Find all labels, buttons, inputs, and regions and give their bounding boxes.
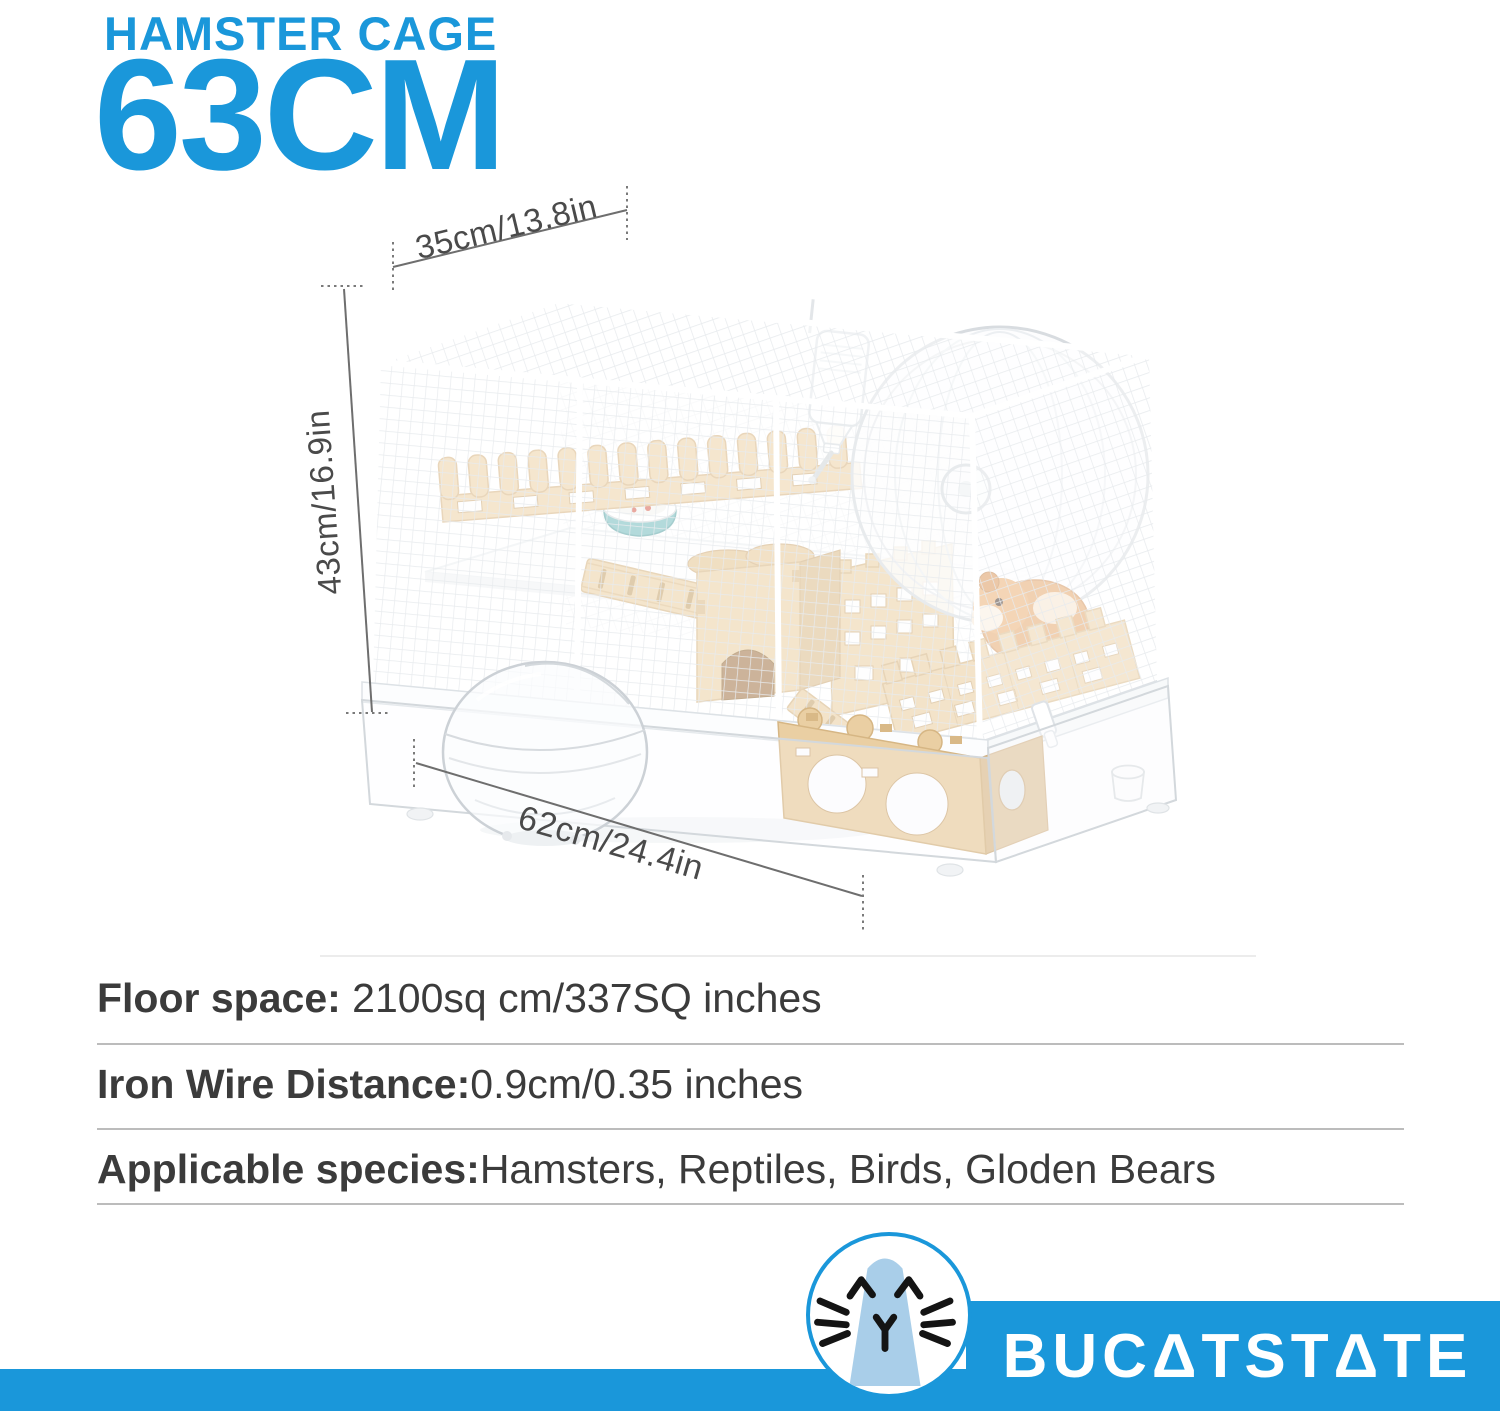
divider xyxy=(97,1128,1404,1130)
cat-logo-icon xyxy=(810,1236,960,1386)
brand-name: BUCΔTSTΔTE xyxy=(975,1301,1500,1411)
spec-row-wire-distance: Iron Wire Distance:0.9cm/0.35 inches xyxy=(97,1061,1404,1108)
photo-backdrop-edge xyxy=(320,955,1256,957)
dimension-lines xyxy=(0,0,1500,1411)
spec-label: Iron Wire Distance: xyxy=(97,1061,470,1107)
divider xyxy=(97,1203,1404,1205)
spec-label: Floor space: xyxy=(97,975,341,1021)
spec-value: 0.9cm/0.35 inches xyxy=(470,1061,803,1107)
spec-value: 2100sq cm/337SQ inches xyxy=(341,975,822,1021)
spec-label: Applicable species: xyxy=(97,1146,480,1192)
cat-whiskers-right xyxy=(923,1301,953,1344)
spec-row-applicable-species: Applicable species:Hamsters, Reptiles, B… xyxy=(97,1146,1404,1193)
cat-whiskers-left xyxy=(818,1301,848,1344)
spec-row-floor-space: Floor space: 2100sq cm/337SQ inches xyxy=(97,975,1404,1022)
spec-value: Hamsters, Reptiles, Birds, Gloden Bears xyxy=(480,1146,1216,1192)
brand-logo-circle xyxy=(806,1232,972,1398)
product-infographic: HAMSTER CAGE 63CM Two-tier hamster cage:… xyxy=(0,0,1500,1411)
divider xyxy=(97,1043,1404,1045)
